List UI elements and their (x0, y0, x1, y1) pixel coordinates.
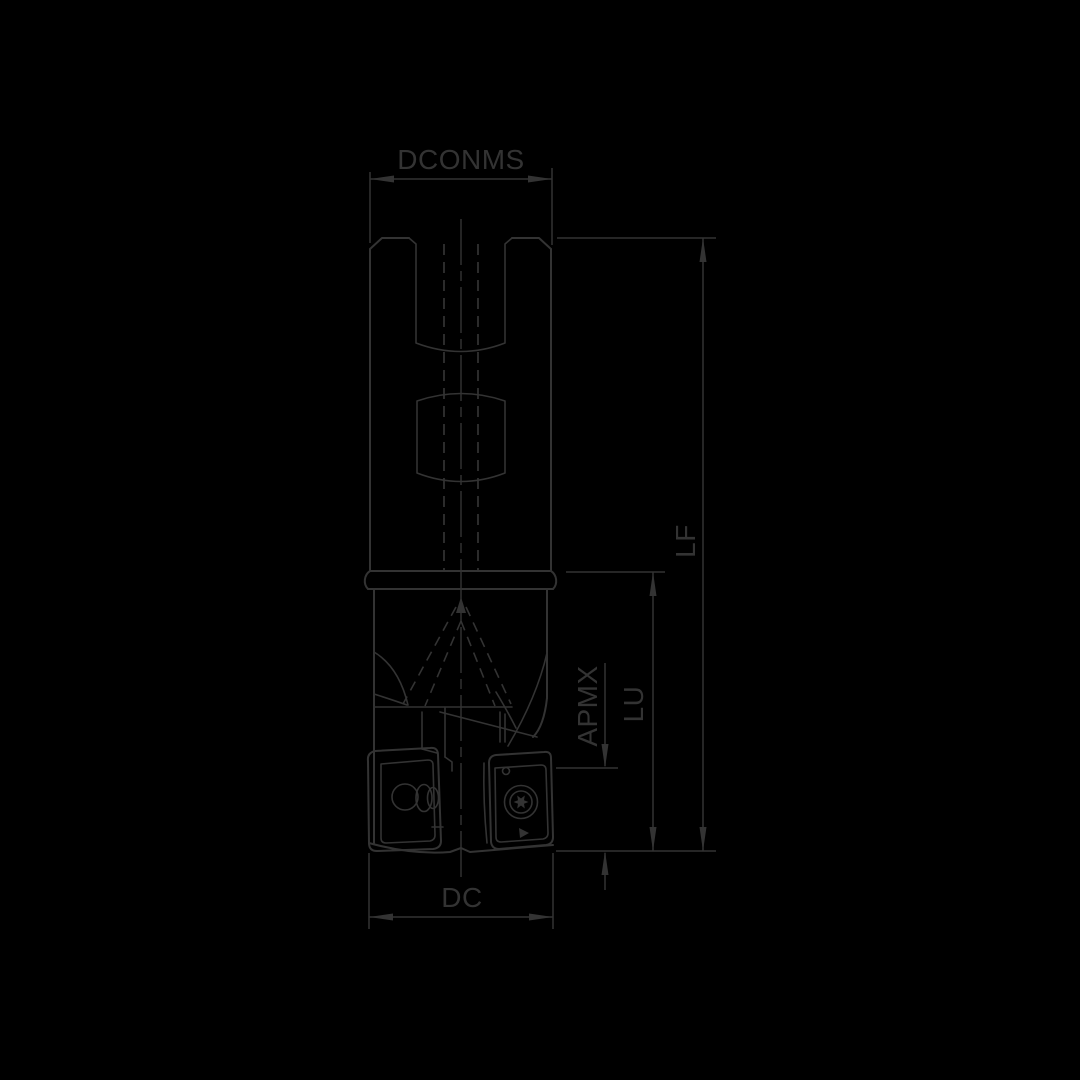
right-pocket-curve (533, 698, 547, 737)
left-pocket-step (445, 757, 452, 771)
shank-top-left-chamfer (370, 238, 409, 249)
dimension-apmx: APMX (556, 663, 618, 890)
label-lf: LF (670, 524, 701, 558)
pocket-ramp-line (440, 712, 537, 737)
left-flute-curve-inner (374, 694, 407, 705)
lf-arrow-bottom (700, 827, 707, 851)
wiper-facet-mark (519, 828, 529, 838)
collar-right-fillet (551, 571, 556, 589)
left-pocket-seat (422, 749, 437, 753)
dimension-lf: LF (556, 238, 716, 851)
dconms-arrow-right (528, 176, 552, 183)
label-dc: DC (441, 882, 482, 913)
center-gash-curve (496, 692, 516, 728)
cone-left-inner (425, 621, 461, 706)
hidden-connection-cone (403, 597, 511, 706)
apmx-arrow-up (602, 851, 609, 875)
dconms-arrow-left (370, 176, 394, 183)
left-insert-inner-line (381, 760, 435, 843)
collar-left-fillet (365, 571, 370, 589)
label-lu: LU (618, 686, 649, 723)
label-dconms: DCONMS (397, 144, 524, 175)
shank-top-right-chamfer (512, 238, 551, 249)
dc-arrow-left (369, 914, 393, 921)
right-pocket-back-wall (484, 763, 487, 843)
lf-arrow-top (700, 238, 707, 262)
lu-arrow-bottom (650, 827, 657, 851)
left-insert-bore-circle (392, 784, 418, 810)
dc-arrow-right (529, 914, 553, 921)
cone-left-outer (403, 607, 456, 704)
lu-arrow-top (650, 572, 657, 596)
torx-screw-icon (514, 796, 529, 809)
right-insert (489, 752, 553, 849)
left-insert-outline (368, 748, 441, 851)
right-flute-curve (508, 653, 547, 746)
cone-right-inner (461, 621, 495, 706)
end-mill-dimension-drawing: DCONMS LF LU APMX DC (0, 0, 1080, 1080)
label-apmx: APMX (572, 665, 603, 746)
drawing-canvas: DCONMS LF LU APMX DC (0, 0, 1080, 1080)
insert-corner-dot (503, 768, 510, 775)
left-flute-curve-outer (374, 652, 408, 705)
left-insert (368, 748, 443, 851)
